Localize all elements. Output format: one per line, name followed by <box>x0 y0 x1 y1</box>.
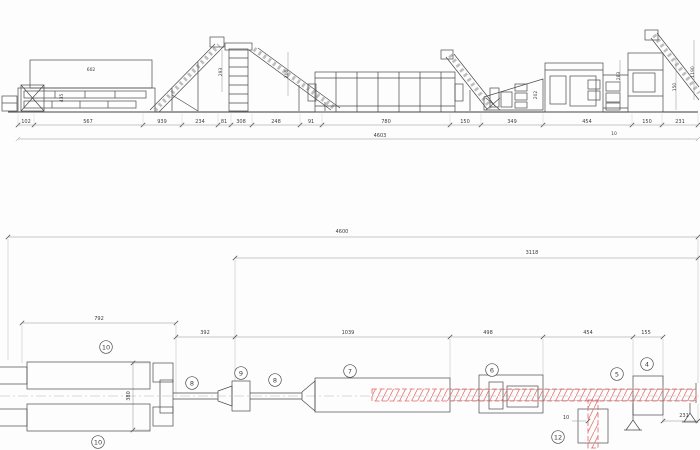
dim-label: 155 <box>641 330 651 336</box>
machine-dim-label: 1190 <box>690 66 696 78</box>
item-balloon-8: 8 <box>269 374 282 387</box>
item-balloon-7: 7 <box>344 365 357 378</box>
machine-dim-label: 602 <box>87 67 96 73</box>
plan-tank-bottom <box>0 404 150 431</box>
elevation-view: 1025679392348130824891780150349454150231… <box>2 30 700 141</box>
total-dim-label: 4603 <box>374 133 387 139</box>
technical-drawing: 1025679392348130824891780150349454150231… <box>0 0 700 450</box>
dim-label: 392 <box>200 330 210 336</box>
balloon-number: 8 <box>273 376 277 384</box>
machine-dim-label: 435 <box>59 94 65 103</box>
plan-tank-top <box>0 362 150 389</box>
balloon-number: 9 <box>239 369 243 377</box>
elevation-box-machine <box>545 63 603 112</box>
dim-label: 1039 <box>342 330 355 336</box>
balloon-number: 10 <box>94 438 102 446</box>
machine-dim-label: 202 <box>533 91 539 100</box>
dim-label: 454 <box>582 119 592 125</box>
machine-dim-label: 206 <box>284 70 290 79</box>
elevation-incline-conveyor-2 <box>249 48 340 111</box>
item-balloon-4: 4 <box>641 358 654 371</box>
dim-label: 102 <box>21 119 31 125</box>
balloon-number: 5 <box>615 370 619 378</box>
item-balloon-6: 6 <box>486 364 499 377</box>
item-balloon-5: 5 <box>611 368 624 381</box>
machine-dim-label: 10 <box>611 131 617 137</box>
overall-dim-label: 4600 <box>336 229 349 235</box>
balloon-number: 7 <box>348 367 352 375</box>
dim-label: 91 <box>308 119 314 125</box>
dim-label: 150 <box>642 119 652 125</box>
dim-label: 308 <box>236 119 246 125</box>
dim-label: 349 <box>507 119 517 125</box>
dim-label: 231 <box>679 413 689 419</box>
item-balloon-12: 12 <box>552 431 565 444</box>
plan-red-conveyor-band <box>372 389 696 401</box>
dim-label: 780 <box>381 119 391 125</box>
dim-label: 234 <box>195 119 205 125</box>
drawing-canvas: 1025679392348130824891780150349454150231… <box>0 0 700 450</box>
chain-dim-label: 3118 <box>526 250 539 256</box>
plan-support-foot-left <box>624 403 642 430</box>
balloon-number: 8 <box>190 379 194 387</box>
plan-view: 46003118792392103949845415523110380 1010… <box>0 229 700 448</box>
elevation-dim-labels: 1025679392348130824891780150349454150231… <box>21 66 696 139</box>
dim-label: 939 <box>157 119 167 125</box>
balloon-number: 6 <box>490 366 494 374</box>
dim-label: 81 <box>221 119 227 125</box>
elevation-incline-conveyor-1 <box>150 37 224 112</box>
dim-label: 454 <box>583 330 593 336</box>
dim-label: 380 <box>126 391 132 401</box>
dim-label: 792 <box>94 316 104 322</box>
dim-label: 498 <box>483 330 493 336</box>
dim-label: 10 <box>563 415 569 421</box>
dim-label: 248 <box>271 119 281 125</box>
machine-dim-label: 293 <box>218 68 224 77</box>
item-balloon-10: 10 <box>100 341 113 354</box>
elevation-elevator-tower <box>225 43 252 111</box>
item-balloon-8: 8 <box>186 377 199 390</box>
dim-label: 150 <box>460 119 470 125</box>
plan-tank-outlets <box>153 363 173 426</box>
elevation-right-machine <box>628 53 663 112</box>
machine-dim-label: 150 <box>672 83 678 92</box>
balloon-number: 10 <box>102 343 110 351</box>
machine-dim-label: 283 <box>616 72 622 81</box>
elevation-incline-conveyor-4 <box>645 30 699 100</box>
elevation-connecting-section <box>603 75 628 110</box>
item-balloon-9: 9 <box>235 367 248 380</box>
dim-label: 231 <box>675 119 685 125</box>
elevation-panel-machine <box>308 72 463 112</box>
balloon-number: 4 <box>645 360 649 368</box>
item-balloon-10: 10 <box>92 436 105 449</box>
plan-red-vertical-band <box>588 400 598 448</box>
balloon-number: 12 <box>554 433 562 441</box>
elevation-left-discharge <box>2 96 17 111</box>
elevation-incline-conveyor-3 <box>441 50 495 111</box>
dim-label: 567 <box>83 119 93 125</box>
